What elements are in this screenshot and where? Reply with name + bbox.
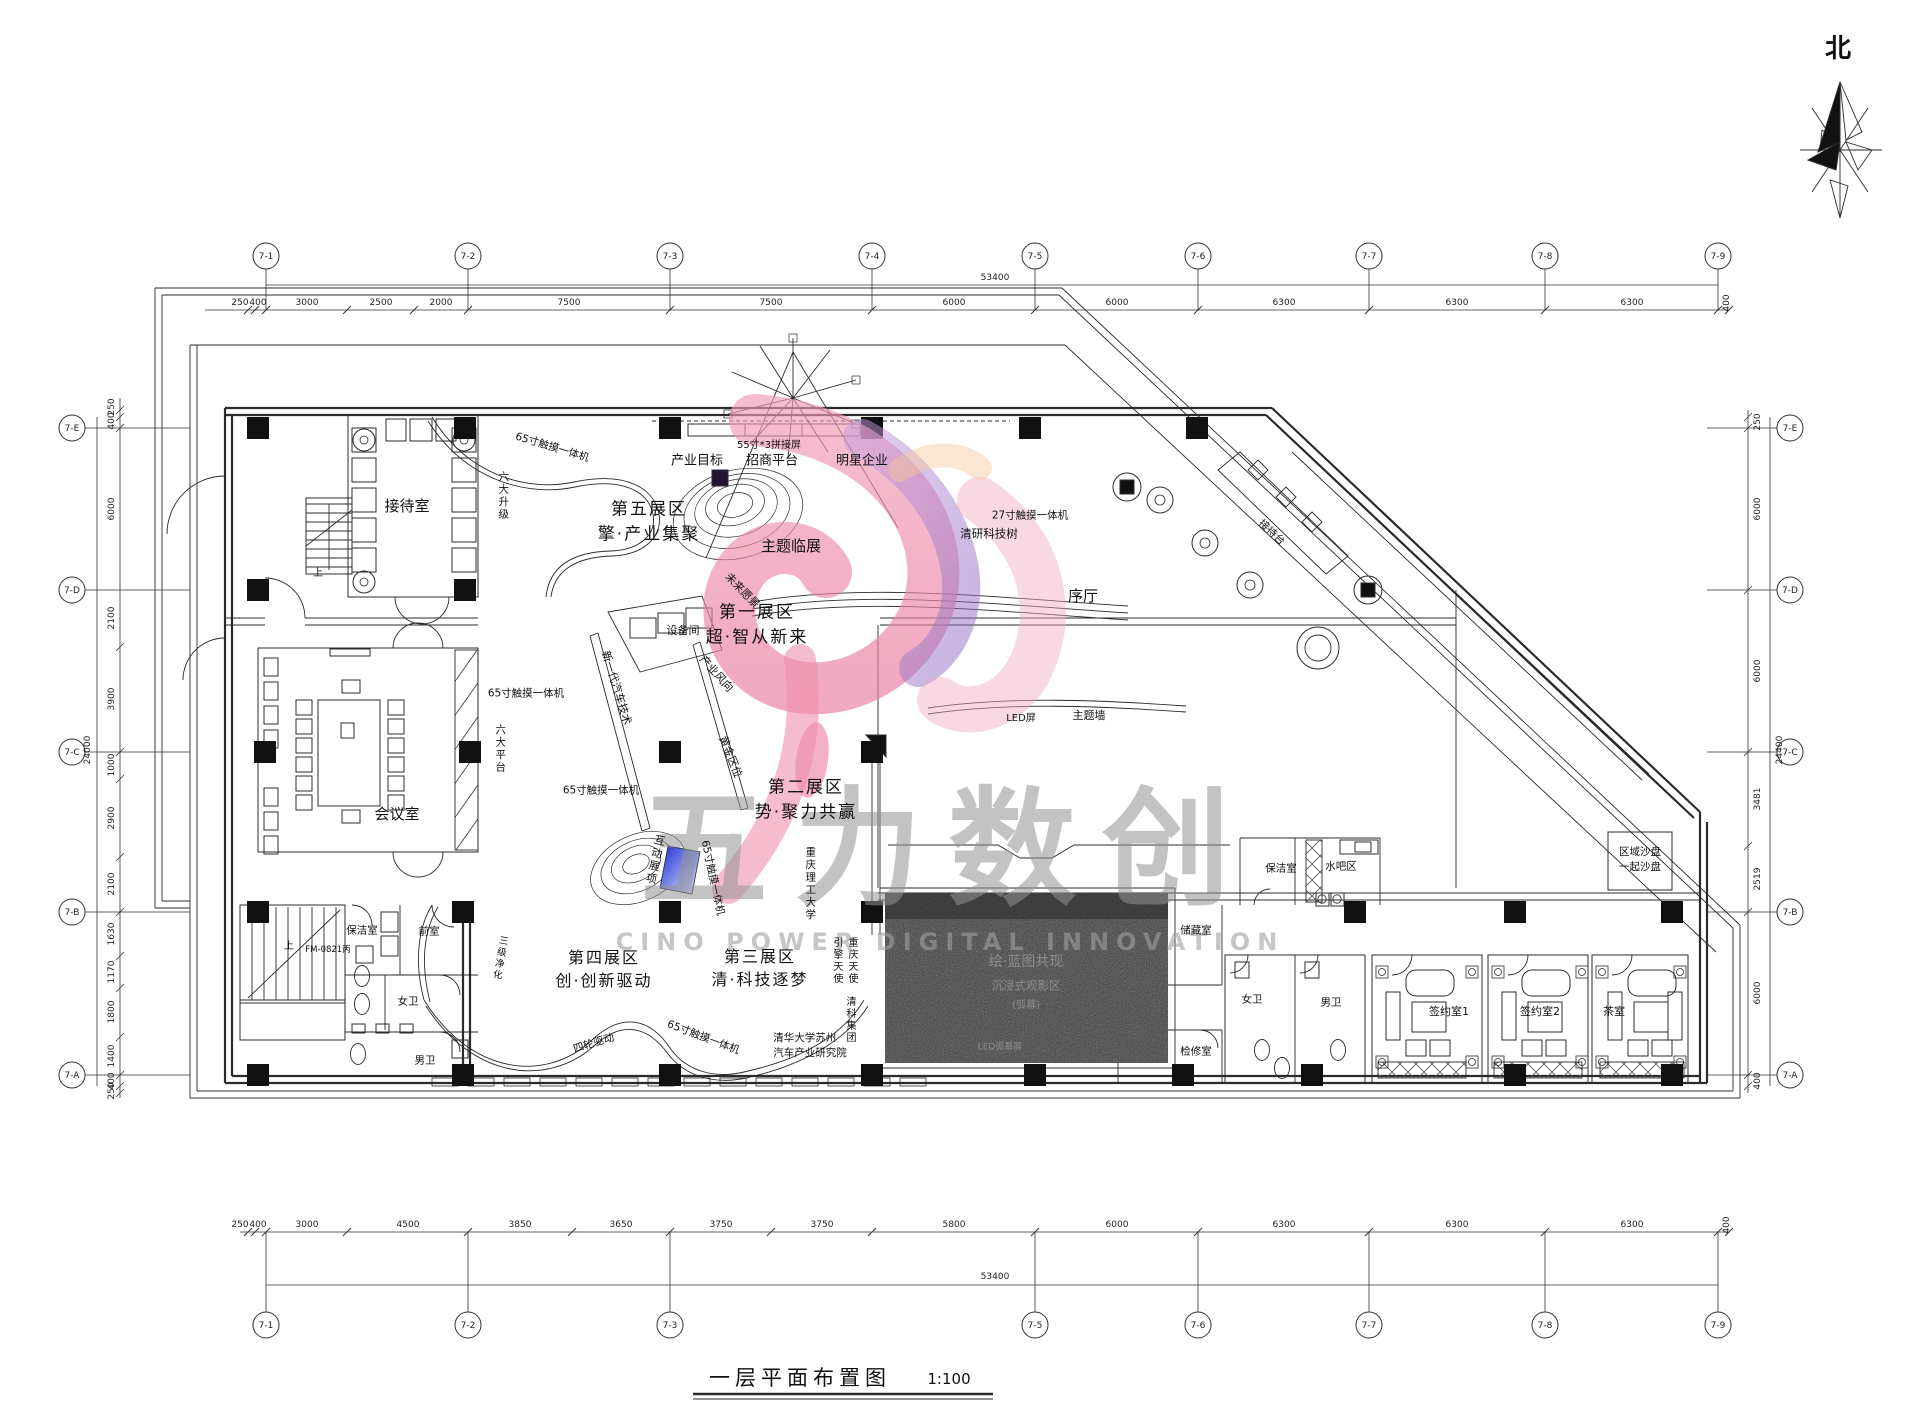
grid-bubble: 7-B [1777, 899, 1803, 925]
svg-text:7-2: 7-2 [461, 1321, 476, 1331]
dimension-value: 250 [231, 1220, 248, 1230]
label-tea: 茶室 [1603, 1004, 1625, 1020]
dimension-value: 250 [1753, 413, 1763, 430]
dimension-value: 400 [1753, 1072, 1763, 1089]
label-lobby: 序厅 [1068, 586, 1098, 608]
dimension-value: 1800 [107, 1001, 117, 1024]
svg-text:7-6: 7-6 [1191, 1321, 1206, 1331]
label-meeting: 会议室 [374, 804, 419, 826]
label-zone5: 第五展区 擎·产业集聚 [598, 497, 700, 546]
label-splice55: 55寸*3拼接屏 [737, 439, 801, 454]
dimension-value: 2500 [370, 298, 393, 308]
dimension-value: 6300 [1621, 1220, 1644, 1230]
dimension-value: 6000 [1753, 982, 1763, 1005]
dimension-value: 6300 [1446, 298, 1469, 308]
grid-bubble: 7-6 [1185, 243, 1211, 269]
label-up1: 上 [313, 567, 323, 582]
svg-text:7-8: 7-8 [1538, 252, 1553, 262]
svg-text:7-1: 7-1 [259, 1321, 274, 1331]
grid-bubble: 7-E [1777, 415, 1803, 441]
dimension-value: 3850 [509, 1220, 532, 1230]
label-six_plat: 六大平台 [495, 724, 506, 774]
dimension-value: 250 [107, 1082, 117, 1099]
dimension-value: 6000 [1106, 1220, 1129, 1230]
svg-text:7-6: 7-6 [1191, 252, 1206, 262]
dimension-value: 6000 [943, 298, 966, 308]
dimension-value: 6300 [1621, 298, 1644, 308]
drawing-title: 一层平面布置图 [709, 1363, 891, 1393]
grid-bubble: 7-8 [1532, 243, 1558, 269]
dimension-value: 1170 [107, 961, 117, 984]
dimension-value: 2100 [107, 607, 117, 630]
grid-bubble: 7-3 [657, 243, 683, 269]
grid-bubble: 7-7 [1356, 243, 1382, 269]
grid-bubble: 7-9 [1705, 1312, 1731, 1338]
label-zone4: 第四展区 创·创新驱动 [555, 946, 652, 992]
dimension-total: 24400 [1775, 736, 1785, 765]
label-dark3: (弧幕) [1012, 999, 1040, 1014]
label-tsinghua: 清华大学苏州 汽车产业研究院 [773, 1031, 847, 1061]
dimension-value: 5800 [943, 1220, 966, 1230]
label-invest: 招商平台 [746, 453, 798, 472]
label-sandbox: 区域沙盘 一起沙盘 [1619, 845, 1661, 875]
dimension-value: 1000 [107, 754, 117, 777]
dimension-total: 53400 [981, 1272, 1010, 1282]
dimension-value: 400 [249, 298, 266, 308]
svg-text:7-C: 7-C [64, 748, 79, 758]
label-industry_goal: 产业目标 [671, 453, 723, 472]
dimension-value: 2100 [107, 873, 117, 896]
dimension-value: 6300 [1273, 298, 1296, 308]
dimension-total: 24000 [83, 736, 93, 765]
floorplan-canvas: 7-17-27-37-47-57-67-77-87-97-17-27-37-57… [0, 0, 1920, 1406]
label-zone2: 第二展区 势·聚力共赢 [755, 775, 857, 824]
label-clean_r: 保洁室 [1265, 861, 1297, 876]
label-touch27: 27寸触摸一体机 [992, 508, 1068, 523]
drawing-scale: 1:100 [927, 1369, 970, 1391]
svg-text:7-D: 7-D [1782, 586, 1798, 596]
grid-bubble: 7-2 [455, 1312, 481, 1338]
dimension-value: 1630 [107, 923, 117, 946]
svg-text:7-1: 7-1 [259, 252, 274, 262]
svg-text:7-9: 7-9 [1711, 252, 1726, 262]
label-touch65_e: 65寸触摸一体机 [563, 783, 639, 798]
label-ante: 前室 [419, 924, 440, 939]
dimension-value: 6000 [1753, 498, 1763, 521]
grid-bubble: 7-5 [1022, 1312, 1048, 1338]
svg-text:7-8: 7-8 [1538, 1321, 1553, 1331]
svg-text:7-E: 7-E [65, 424, 80, 434]
dimension-total: 53400 [981, 273, 1010, 283]
label-led: LED屏 [1006, 712, 1036, 727]
grid-bubble: 7-B [59, 899, 85, 925]
dimension-value: 3481 [1753, 788, 1763, 811]
grid-bubble: 7-4 [859, 243, 885, 269]
label-fm: FM-0821丙 [305, 944, 350, 956]
grid-bubble: 7-2 [455, 243, 481, 269]
label-cqut: 重庆理工大学 [805, 847, 816, 922]
grid-bubble: 7-9 [1705, 243, 1731, 269]
dimension-value: 1400 [107, 1045, 117, 1068]
label-inspect: 检修室 [1180, 1044, 1212, 1059]
label-zone3: 第三展区 清·科技逐梦 [711, 945, 808, 991]
grid-bubble: 7-7 [1356, 1312, 1382, 1338]
dimension-value: 6000 [1753, 660, 1763, 683]
dimension-value: 2900 [107, 807, 117, 830]
label-six_up: 六大升级 [498, 471, 509, 521]
dimension-value: 6000 [1106, 298, 1129, 308]
grid-bubble: 7-5 [1022, 243, 1048, 269]
dimension-value: 400 [1722, 1216, 1732, 1233]
grid-bubble: 7-D [1777, 577, 1803, 603]
label-dark4: LED弧幕屏 [978, 1041, 1023, 1054]
grid-bubble: 7-3 [657, 1312, 683, 1338]
svg-text:7-7: 7-7 [1362, 1321, 1377, 1331]
label-storage: 储藏室 [1180, 923, 1212, 938]
svg-text:7-B: 7-B [65, 908, 80, 918]
grid-bubble: 7-D [59, 577, 85, 603]
dimension-value: 3650 [610, 1220, 633, 1230]
grid-bubble: 7-A [1777, 1062, 1803, 1088]
label-themewall: 主题墙 [1073, 708, 1106, 724]
label-equipment: 设备间 [667, 623, 700, 639]
dimension-value: 7500 [558, 298, 581, 308]
grid-bubble: 7-8 [1532, 1312, 1558, 1338]
floor-plan-drawing: 7-17-27-37-47-57-67-77-87-97-17-27-37-57… [0, 0, 1920, 1406]
grid-bubble: 7-1 [253, 1312, 279, 1338]
dimension-value: 3750 [811, 1220, 834, 1230]
svg-text:7-B: 7-B [1783, 908, 1798, 918]
svg-text:7-D: 7-D [64, 586, 80, 596]
dimension-value: 400 [107, 412, 117, 429]
svg-text:7-2: 7-2 [461, 252, 476, 262]
label-up2: 上 [284, 940, 294, 955]
svg-text:7-3: 7-3 [663, 252, 678, 262]
svg-text:7-5: 7-5 [1028, 252, 1043, 262]
dimension-value: 6000 [107, 498, 117, 521]
grid-bubble: 7-E [59, 415, 85, 441]
grid-bubble: 7-6 [1185, 1312, 1211, 1338]
label-dark1: 绘·蓝图共现 [989, 952, 1063, 972]
label-sign2: 签约室2 [1520, 1004, 1560, 1020]
dimension-value: 400 [249, 1220, 266, 1230]
grid-bubble: 7-C [59, 739, 85, 765]
label-star: 明星企业 [836, 453, 888, 472]
dimension-value: 4500 [397, 1220, 420, 1230]
dimension-value: 2000 [430, 298, 453, 308]
dimension-value: 3000 [296, 298, 319, 308]
north-label: 北 [1825, 31, 1851, 69]
svg-text:7-A: 7-A [65, 1071, 81, 1081]
label-dark2: 沉浸式观影区 [992, 978, 1061, 995]
dimension-value: 6300 [1273, 1220, 1296, 1230]
grid-bubble: 7-1 [253, 243, 279, 269]
label-angel1: 引擎天使 [831, 937, 841, 985]
svg-text:7-3: 7-3 [663, 1321, 678, 1331]
label-angel2: 重庆天使 [846, 937, 856, 985]
dimension-value: 3000 [296, 1220, 319, 1230]
label-clean_l: 保洁室 [346, 923, 378, 938]
label-sign1: 签约室1 [1429, 1004, 1469, 1020]
dimension-value: 250 [231, 298, 248, 308]
svg-text:7-7: 7-7 [1362, 252, 1377, 262]
dimension-value: 400 [1722, 294, 1732, 311]
label-men_r: 男卫 [1321, 995, 1342, 1010]
dimension-value: 3750 [710, 1220, 733, 1230]
label-tech_tree: 清研科技树 [960, 526, 1018, 543]
dimension-value: 7500 [760, 298, 783, 308]
svg-text:7-5: 7-5 [1028, 1321, 1043, 1331]
dimension-value: 6300 [1446, 1220, 1469, 1230]
label-women_r: 女卫 [1242, 992, 1263, 1007]
svg-text:7-A: 7-A [1783, 1071, 1799, 1081]
label-touch65_b: 65寸触摸一体机 [488, 686, 564, 701]
label-waterbar: 水吧区 [1325, 859, 1357, 874]
dimension-value: 2519 [1753, 868, 1763, 891]
grid-bubble: 7-A [59, 1062, 85, 1088]
label-zone1: 第一展区 超·智从新来 [706, 600, 808, 649]
dimension-value: 3900 [107, 688, 117, 711]
label-women_l: 女卫 [398, 994, 419, 1009]
label-theme_temp: 主题临展 [761, 536, 821, 558]
label-men_l: 男卫 [415, 1053, 436, 1068]
label-reception: 接待室 [384, 496, 429, 518]
label-tskj: 清科集团 [844, 996, 854, 1044]
svg-text:7-E: 7-E [1783, 424, 1798, 434]
svg-text:7-4: 7-4 [865, 252, 880, 262]
svg-text:7-9: 7-9 [1711, 1321, 1726, 1331]
